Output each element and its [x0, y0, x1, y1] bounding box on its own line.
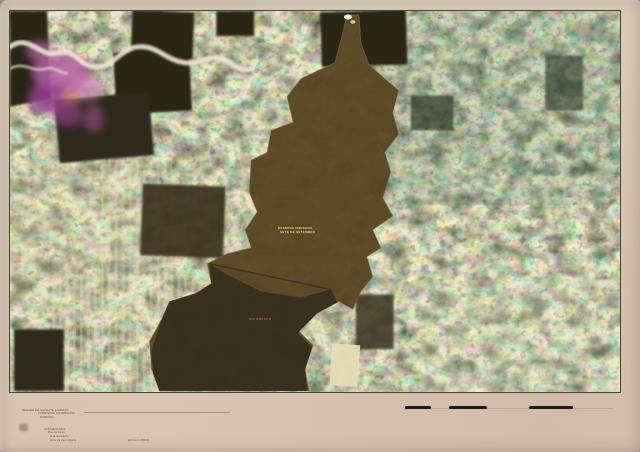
- legend-line-2: COMPOSICAO COLORIDA MSS: [38, 413, 75, 416]
- legend-scale-note: ESCALA 1:250000: [128, 440, 149, 443]
- scale-bar-segment: [405, 406, 431, 409]
- satellite-image: RESERVA INDIGENA SETE DE SETEMBRO RIO BR…: [9, 10, 621, 393]
- legend-title: IMAGEM DE SATELITE LANDSAT: [22, 409, 68, 412]
- ink-mark: [19, 424, 28, 431]
- map-sheet: RESERVA INDIGENA SETE DE SETEMBRO RIO BR…: [0, 0, 640, 452]
- scale-bar-baseline: [405, 408, 613, 409]
- legend-heading: CONVENCOES: [44, 428, 65, 431]
- satellite-image-art: [10, 11, 620, 392]
- legend-item: Limite da area indigena: [50, 440, 76, 443]
- legend-line-3: RONDONIA: [40, 417, 53, 420]
- scale-bar-segment: [529, 406, 573, 409]
- legend-rule: [84, 412, 230, 413]
- legend-item: Floresta densa: [48, 432, 65, 435]
- scale-bar-segment: [449, 406, 487, 409]
- legend-item: Area desmatada: [50, 436, 68, 439]
